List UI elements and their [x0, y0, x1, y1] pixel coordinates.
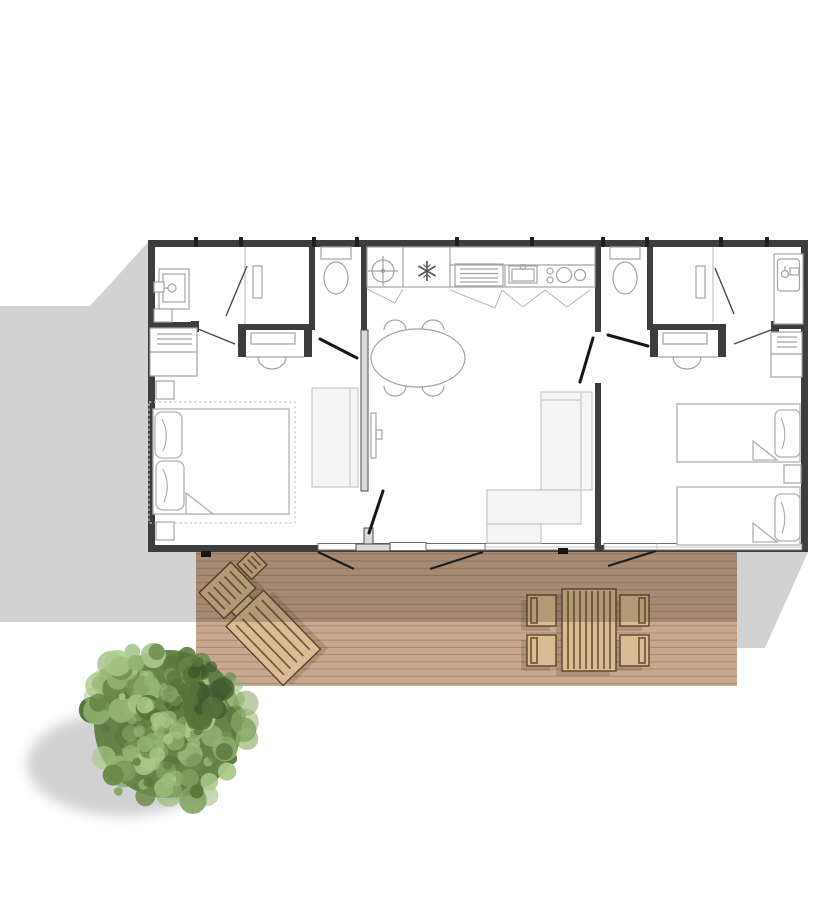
tree-foliage-blob	[144, 675, 158, 689]
corner-sofa-long	[541, 392, 592, 490]
tree-foliage-blob	[127, 716, 136, 725]
tree-foliage-blob	[101, 723, 110, 732]
deskR-niche-stub	[650, 330, 658, 357]
wall-kitchen-wcR	[595, 247, 601, 332]
pillow	[775, 410, 800, 457]
wc-right	[610, 247, 640, 294]
tree-foliage-blob	[133, 758, 141, 766]
shower-basin	[774, 254, 803, 324]
tree-foliage-blob	[151, 712, 166, 727]
wall-living-bedroom2	[595, 383, 601, 548]
tree-foliage-blob	[218, 763, 236, 781]
tree-foliage-blob	[104, 650, 130, 676]
deskR-niche-top	[650, 324, 726, 330]
tree-foliage-blob	[103, 765, 124, 786]
wardrobe-rail	[696, 266, 705, 298]
wc-left	[321, 247, 351, 294]
tree-foliage-blob	[201, 697, 222, 718]
wall-wcL-kitchen	[361, 247, 367, 330]
floor-plan-canvas	[0, 0, 813, 900]
deck-shadow-band	[196, 552, 737, 622]
tree-foliage-blob	[161, 685, 178, 702]
wall-bathroomL-wc	[309, 247, 315, 330]
deskL-niche-top	[238, 324, 312, 330]
tree-foliage-blob	[137, 736, 153, 752]
toilet-bowl	[324, 262, 348, 294]
toilet-bowl	[613, 262, 637, 294]
tree-foliage-blob	[128, 655, 144, 671]
tree-foliage-blob	[190, 785, 204, 799]
tree-foliage-blob	[188, 666, 200, 678]
toilet-tank	[610, 247, 640, 259]
toilet-tank	[321, 247, 351, 259]
pillow	[155, 412, 182, 458]
water-heater-dot	[381, 269, 385, 273]
deskL-niche-stub	[304, 330, 312, 357]
tree-foliage-blob	[122, 725, 138, 741]
tree-foliage-blob	[201, 773, 219, 791]
nightstand	[156, 522, 174, 540]
tree-foliage-blob	[194, 657, 203, 666]
deskR-niche-stub	[718, 330, 726, 357]
deck-step-mark	[201, 551, 211, 557]
tree-foliage-blob	[140, 758, 152, 770]
tree-foliage-blob	[236, 727, 259, 750]
deskL-niche-stub	[238, 330, 246, 357]
tree-foliage-blob	[114, 787, 123, 796]
pillow	[156, 461, 184, 510]
dining-table-oval	[371, 329, 465, 387]
tree-foliage-blob	[221, 731, 231, 741]
tree-foliage-blob	[143, 777, 153, 787]
wall-wcR-bedroom2	[647, 247, 653, 330]
tree-foliage-blob	[186, 753, 204, 771]
tv	[371, 413, 376, 458]
deck-step-mark	[558, 548, 568, 554]
building	[148, 237, 808, 557]
tree-foliage-blob	[165, 731, 184, 750]
tree-foliage-blob	[149, 747, 165, 763]
pillow	[775, 494, 800, 541]
tree-foliage-blob	[156, 780, 183, 807]
entrance-fixed-panel	[390, 543, 426, 551]
bench-sofa	[312, 388, 358, 487]
tree-foliage-blob	[119, 693, 126, 700]
nightstand	[784, 465, 801, 483]
tree-foliage-blob	[149, 644, 165, 660]
tree-foliage-blob	[163, 760, 173, 770]
wardrobe-rail	[253, 266, 262, 298]
floor-plan-svg	[0, 0, 813, 900]
tree-foliage-blob	[216, 743, 233, 760]
nightstand	[156, 381, 174, 399]
bath-shelf	[154, 309, 172, 322]
wall-bedroom1-living	[361, 330, 368, 491]
kitchen-counter	[367, 247, 595, 287]
tree-foliage-blob	[212, 677, 235, 700]
door-post-base	[356, 544, 390, 551]
corner-sofa-foot	[487, 524, 541, 543]
faucet-base	[154, 282, 164, 292]
tree-foliage-blob	[136, 697, 153, 714]
corner-sofa-chaise	[487, 490, 581, 524]
